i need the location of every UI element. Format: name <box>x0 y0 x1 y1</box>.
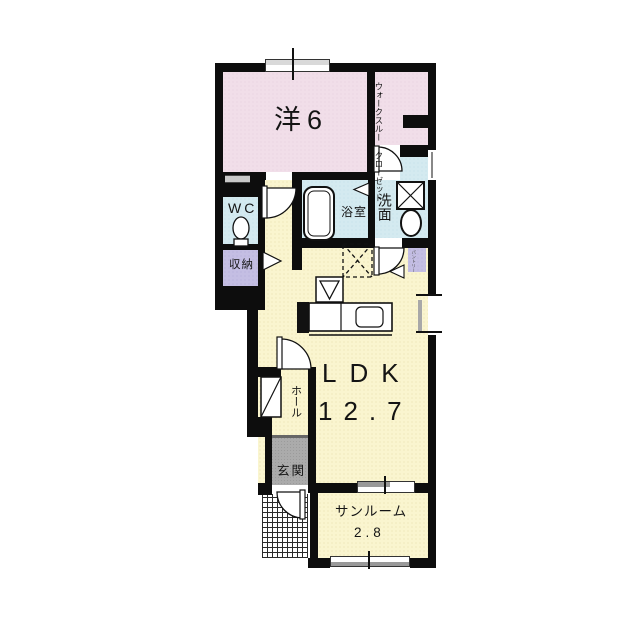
storage-door-icon <box>263 252 281 270</box>
label-western-room: 洋6 <box>274 106 328 134</box>
bath-door-icon <box>354 183 369 196</box>
sink-icon <box>401 210 421 236</box>
label-ldk: LDK <box>322 360 412 387</box>
fixtures-layer <box>0 0 640 640</box>
label-wc: WC <box>228 201 257 216</box>
label-wtc-line1: ウォークスルー <box>374 82 384 142</box>
toilet-icon <box>233 217 249 246</box>
label-walk-through-closet: ウォークスルークローゼット <box>374 82 383 152</box>
floor-plan: 洋6 ウォークスルークローゼット WC 浴室 洗面 収納 パントリー LDK 1… <box>0 0 640 640</box>
label-pantry: パントリー <box>411 250 416 271</box>
label-hall: ホール <box>289 385 301 431</box>
label-ldk-size: 12.7 <box>318 398 413 425</box>
hall-ldk-door <box>277 337 311 369</box>
washroom-door <box>374 247 404 278</box>
stove-icon <box>316 277 343 302</box>
bathtub-icon <box>304 187 334 240</box>
shoe-cabinet-icon <box>261 377 281 417</box>
front-door <box>277 490 305 519</box>
label-sunroom: サンルーム <box>335 505 407 519</box>
western-room-door <box>262 186 296 218</box>
label-sunroom-size: 2.8 <box>354 526 385 540</box>
label-storage: 収納 <box>229 259 254 271</box>
label-bath: 浴室 <box>341 206 367 219</box>
refrigerator-space-icon <box>343 244 372 277</box>
label-entrance: 玄関 <box>277 465 306 478</box>
washing-machine-icon <box>397 182 424 209</box>
label-washroom: 洗面 <box>377 193 392 237</box>
kitchen-counter-icon <box>297 302 392 335</box>
